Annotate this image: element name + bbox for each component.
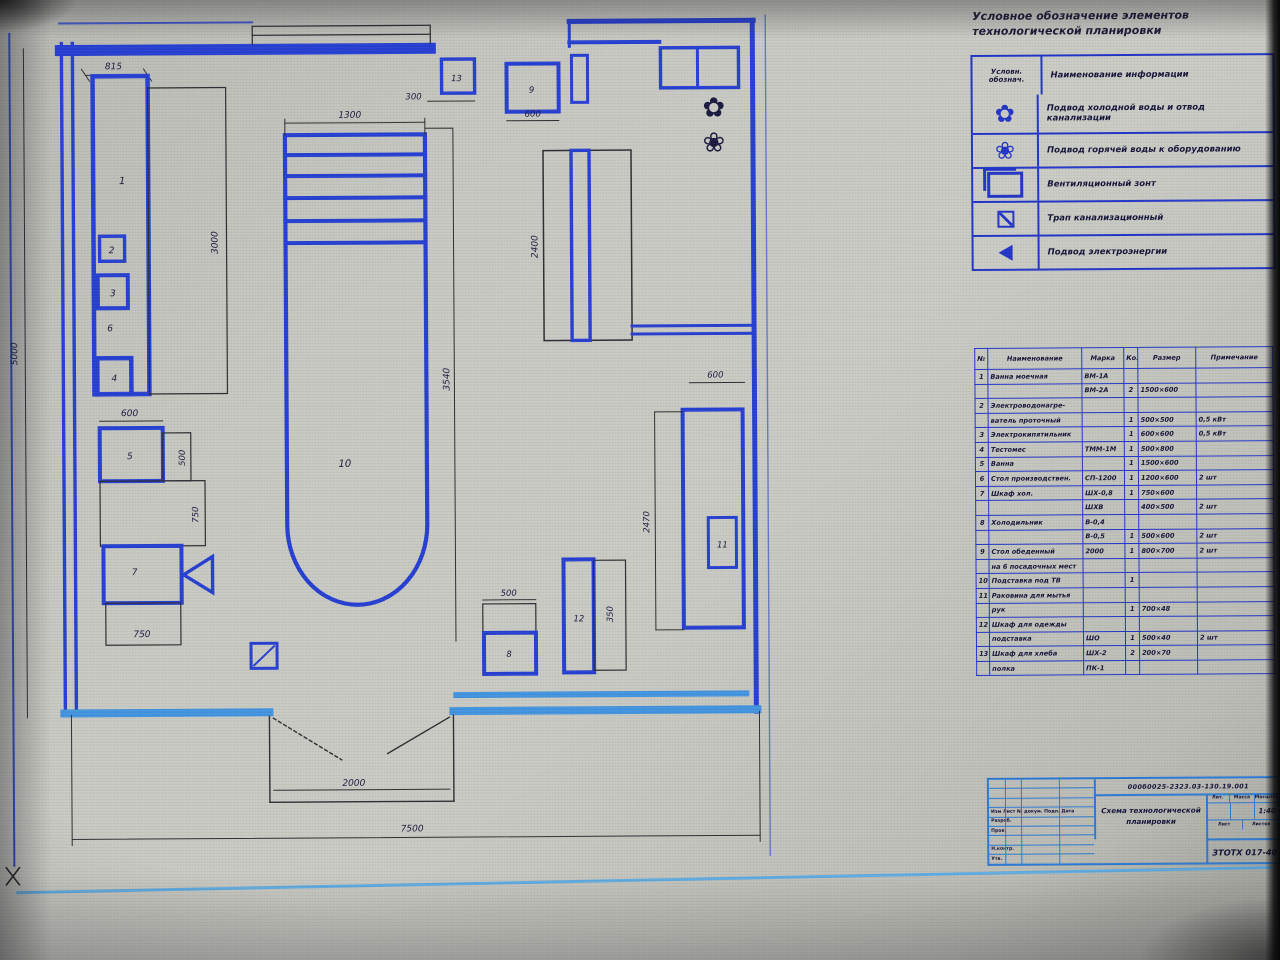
table-cell	[1082, 398, 1124, 413]
wall-cabinet	[660, 47, 738, 87]
table-cell: полка	[990, 661, 1084, 676]
label-equipment-5: 5	[127, 452, 133, 462]
table-cell: 11	[976, 588, 989, 603]
label-equipment-11: 11	[717, 540, 728, 550]
equipment-mid	[571, 150, 590, 340]
table-cell: 200×70	[1140, 645, 1198, 660]
legend-row-desc: Подвод холодной воды и отвод канализации	[1039, 93, 1273, 132]
door-swing-left	[273, 718, 341, 760]
table-cell	[1125, 587, 1139, 602]
lit-value	[1206, 803, 1231, 819]
table-cell: 400×500	[1139, 499, 1197, 514]
power-symbol-plan	[183, 557, 212, 593]
dim-left-rect: 3000	[210, 231, 220, 254]
table-cell: 1	[1124, 471, 1138, 486]
sheet-label: Лист	[1206, 820, 1243, 829]
table-cell	[1082, 412, 1124, 427]
table-cell	[1197, 514, 1274, 529]
table-cell: В-0,4	[1083, 514, 1125, 529]
table-cell: 2	[975, 399, 988, 414]
table-header-row: №НаименованиеМаркаКолРазмерПримечание	[975, 347, 1273, 370]
table-cell: Ванна	[988, 456, 1082, 471]
label-equipment-10: 10	[338, 459, 351, 470]
table-cell: 3	[975, 428, 988, 443]
table-cell: ПК-1	[1084, 660, 1126, 675]
sheet-frame-left	[9, 34, 14, 866]
table-cell: 7	[976, 486, 989, 501]
table-cell: 1	[1124, 427, 1138, 442]
legend-row-desc: Подвод электроэнергии	[1040, 235, 1274, 268]
table-cell: 2 шт	[1197, 543, 1274, 558]
equipment-7	[103, 546, 181, 603]
table-cell	[976, 530, 989, 545]
power-symbol-icon	[999, 245, 1013, 261]
table-cell: 1	[1125, 529, 1139, 544]
drawing-title-line2: планировки	[1126, 816, 1176, 826]
dim-counter-side: 2470	[642, 511, 652, 533]
table-cell: 1	[1124, 412, 1138, 427]
table-cell: 1	[1125, 631, 1139, 646]
dim-c-mid: 750	[191, 507, 201, 523]
drawing-title-line1: Схема технологической	[1101, 806, 1201, 817]
table-cell	[1125, 558, 1139, 573]
table-cell: 2 шт	[1197, 528, 1274, 543]
table-cell: 800×700	[1139, 543, 1197, 558]
label-equipment-7: 7	[132, 568, 138, 578]
drain-symbol-icon	[997, 210, 1014, 227]
table-cell: 700×48	[1139, 602, 1197, 617]
equipment-10	[285, 134, 428, 605]
table-cell: Подставка под ТВ	[989, 573, 1083, 588]
legend-header-desc: Наименование информации	[1042, 55, 1272, 94]
table-cell	[1196, 397, 1273, 412]
table-cell: 12	[976, 617, 989, 632]
drain-symbol-plan	[251, 643, 277, 668]
table-row: полкаПК-1	[977, 660, 1275, 676]
label-equipment-3: 3	[110, 289, 116, 299]
dim-c7-bottom: 750	[133, 630, 151, 640]
table-cell: ТММ-1М	[1082, 442, 1124, 457]
table-cell	[1126, 660, 1140, 675]
table-cell: 1	[1125, 485, 1139, 500]
table-cell: Шкаф для хлеба	[990, 646, 1084, 661]
table-cell	[1124, 398, 1138, 413]
legend-symbol-cell	[973, 169, 1039, 201]
table-cell: 750×600	[1139, 485, 1197, 500]
table-cell	[1197, 616, 1274, 631]
legend-header: Условн. обознач. Наименование информации	[972, 55, 1272, 95]
table-cell	[1139, 616, 1197, 631]
legend-row-desc: Трап канализационный	[1039, 201, 1273, 234]
dim-left-height: 5000	[10, 342, 20, 365]
legend-row: Вентиляционный зонт	[973, 165, 1273, 201]
label-equipment-4: 4	[111, 374, 117, 384]
table-cell: 6	[975, 472, 988, 487]
table-header-cell: Примечание	[1196, 347, 1273, 368]
table-cell: 1	[1124, 456, 1138, 471]
table-cell	[975, 384, 988, 399]
table-cell: Раковина для мытья	[989, 588, 1083, 603]
table-cell	[1083, 587, 1125, 602]
table-cell: Стол обеденный	[989, 544, 1083, 559]
table-cell	[1197, 587, 1274, 602]
table-cell	[1125, 617, 1139, 632]
table-cell: 1	[1125, 573, 1139, 588]
legend-symbol-cell	[973, 135, 1039, 167]
dimension-lines	[23, 44, 760, 845]
table-cell: 500×500	[1138, 412, 1196, 427]
table-cell: 2	[1126, 646, 1140, 661]
table-cell: 1	[1125, 544, 1139, 559]
group-code: ЗТОТХ 017-40	[1206, 838, 1280, 864]
dim-c5-side: 500	[178, 450, 188, 466]
bottom-walls	[64, 693, 757, 713]
table-cell	[1083, 558, 1125, 573]
table-cell: 1500×600	[1138, 456, 1196, 471]
table-cell: 1	[1124, 441, 1138, 456]
table-cell	[988, 383, 1082, 398]
table-cell: 4	[975, 442, 988, 457]
table-cell	[1082, 427, 1124, 442]
table-cell: ВМ-2А	[1082, 383, 1124, 398]
table-cell	[1196, 382, 1273, 397]
table-cell: 500×600	[1139, 529, 1197, 544]
legend-row: Подвод горячей воды к оборудованию	[973, 131, 1273, 167]
scale-label: Масштаб	[1255, 793, 1279, 802]
cold-water-symbol-plan: ✿	[702, 92, 725, 123]
dim-mid-rect: 2400	[531, 235, 541, 258]
table-cell	[1198, 660, 1275, 675]
table-cell	[1140, 660, 1198, 675]
table-cell: на 6 посадочных мест	[989, 559, 1083, 574]
table-cell: ШХВ	[1083, 500, 1125, 515]
table-cell: СП-1200	[1082, 471, 1124, 486]
dim-top-left: 815	[105, 62, 123, 72]
table-cell	[1197, 484, 1274, 499]
dim-sq13: 300	[405, 92, 421, 102]
table-cell	[1125, 500, 1139, 515]
room-walls	[60, 20, 757, 715]
legend-row: Подвод электроэнергии	[974, 233, 1274, 269]
table-cell	[976, 632, 989, 647]
hot-water-symbol-icon	[995, 139, 1015, 163]
dim-sq9: 600	[525, 110, 541, 120]
table-cell: ВМ-1А	[1082, 369, 1124, 384]
title-block: 000б0025-2323.03-130.19.001 Изм Лист № д…	[987, 776, 1280, 866]
table-cell: 5	[975, 457, 988, 472]
table-cell: 1200×600	[1138, 470, 1196, 485]
table-cell	[1138, 368, 1196, 383]
table-cell: В-0,5	[1083, 529, 1125, 544]
table-cell: ШХ-2	[1084, 646, 1126, 661]
table-cell	[1139, 514, 1197, 529]
dim-counter-top: 600	[707, 370, 723, 380]
dim-b8-top: 500	[501, 589, 517, 599]
label-equipment-1: 1	[119, 176, 125, 187]
table-cell: 600×600	[1138, 426, 1196, 441]
floor-plan: 2000 7500 5000 815 1 2 3	[0, 0, 783, 960]
door-swing-right	[387, 717, 449, 753]
hot-water-symbol-plan: ❀	[703, 127, 726, 158]
table-cell	[1083, 573, 1125, 588]
table-cell: 2 шт	[1197, 630, 1274, 645]
table-cell	[975, 413, 988, 428]
legend-row: Подвод холодной воды и отвод канализации	[973, 93, 1273, 133]
table-cell	[1139, 572, 1197, 587]
table-cell	[1124, 368, 1138, 383]
dim-overall: 7500	[401, 824, 424, 834]
screen-photo: 2000 7500 5000 815 1 2 3	[0, 0, 1280, 960]
spec-table: №НаименованиеМаркаКолРазмерПримечание 1В…	[974, 346, 1275, 676]
table-cell	[1138, 397, 1196, 412]
table-cell	[1196, 441, 1273, 456]
scale-value: 1:40	[1255, 803, 1279, 819]
cold-water-symbol-icon	[995, 102, 1015, 126]
equipment-left-column	[93, 76, 150, 394]
legend-row-desc: Вентиляционный зонт	[1039, 167, 1273, 200]
table-cell	[1197, 557, 1274, 572]
table-header-cell: Марка	[1082, 348, 1124, 369]
table-cell: 500×800	[1138, 441, 1196, 456]
table-cell: Ванна моечная	[988, 369, 1082, 384]
table-cell	[977, 661, 990, 676]
table-cell	[1197, 572, 1274, 587]
table-header-cell: Размер	[1138, 347, 1196, 368]
label-equipment-9: 9	[529, 86, 534, 96]
table-cell	[976, 603, 989, 618]
table-cell	[1125, 514, 1139, 529]
legend-symbol-cell	[973, 203, 1039, 235]
label-equipment-8: 8	[506, 650, 512, 660]
table-cell: 1	[1125, 602, 1139, 617]
label-equipment-13: 13	[451, 74, 462, 84]
title-block-right: Лит. Масса Масштаб 1:40 Лист Листов	[1206, 793, 1279, 838]
lit-label: Лит.	[1206, 793, 1230, 802]
table-cell: 1	[975, 369, 988, 384]
partition-lines	[632, 325, 754, 334]
table-header-cell: Кол	[1124, 347, 1138, 368]
legend-title: Условное обозначение элементов технологи…	[972, 8, 1272, 40]
spec-table-body: 1Ванна моечнаяВМ-1АВМ-2А21500×6002Электр…	[975, 368, 1275, 676]
table-cell	[989, 529, 1083, 544]
title-block-left: Изм Лист № докум. Подп. ДатаРазраб.Пров.…	[989, 779, 1095, 864]
legend-symbol-cell	[973, 95, 1039, 133]
table-cell: 9	[976, 544, 989, 559]
table-cell: ватель проточный	[988, 413, 1082, 428]
table-cell: 8	[976, 515, 989, 530]
table-cell	[1083, 602, 1125, 617]
dim-rack-side: 3540	[442, 367, 452, 390]
label-equipment-2: 2	[109, 246, 115, 256]
table-cell	[1139, 587, 1197, 602]
table-header-cell: №	[975, 348, 988, 369]
table-cell	[1196, 455, 1273, 470]
table-cell	[1197, 601, 1274, 616]
table-cell	[1083, 617, 1125, 632]
table-cell: 2 шт	[1196, 470, 1273, 485]
table-cell: ШХ-0,8	[1083, 485, 1125, 500]
upper-wall-lines	[252, 25, 430, 44]
table-cell: 2	[1124, 383, 1138, 398]
dim-b12-side: 350	[606, 606, 616, 622]
rack-shelves	[285, 154, 426, 243]
legend-symbol-cell	[974, 237, 1040, 269]
table-cell: 10	[976, 574, 989, 589]
table-cell	[989, 500, 1083, 515]
table-cell: 2 шт	[1197, 499, 1274, 514]
dim-c5-top: 600	[121, 409, 139, 419]
table-cell: ШО	[1083, 631, 1125, 646]
sheet-frame-right	[765, 15, 770, 855]
table-cell: Холодильник	[989, 515, 1083, 530]
legend-table: Условн. обознач. Наименование информации…	[970, 53, 1275, 271]
table-cell: Электроводонагре-	[988, 398, 1082, 413]
table-cell	[1082, 456, 1124, 471]
table-cell: 0,5 кВт	[1196, 411, 1273, 426]
legend-row-desc: Подвод горячей воды к оборудованию	[1039, 133, 1273, 166]
table-cell: 13	[977, 647, 990, 662]
sheets-label: Листов	[1243, 820, 1279, 829]
table-cell: рук	[989, 602, 1083, 617]
table-cell: Стол производствен.	[988, 471, 1082, 486]
table-cell: Шкаф хол.	[989, 486, 1083, 501]
label-equipment-12: 12	[573, 614, 584, 624]
mass-label: Масса	[1230, 793, 1254, 802]
table-cell: 2000	[1083, 544, 1125, 559]
table-cell: Тестомес	[988, 442, 1082, 457]
legend-rows: Подвод холодной воды и отвод канализации…	[973, 93, 1274, 269]
dim-door: 2000	[342, 779, 365, 789]
vent-hood-symbol-icon	[987, 172, 1023, 198]
legend-row: Трап канализационный	[973, 199, 1273, 235]
table-cell	[1139, 558, 1197, 573]
narrow-cabinet	[571, 55, 587, 102]
table-cell: Электрокипятильник	[988, 427, 1082, 442]
mass-value	[1231, 803, 1256, 819]
spec-table-head: №НаименованиеМаркаКолРазмерПримечание	[975, 347, 1273, 370]
corner-x-mark	[6, 868, 19, 885]
table-cell: 1500×600	[1138, 383, 1196, 398]
legend-title-text: Условное обозначение элементов технологи…	[972, 9, 1189, 38]
drawing-title: Схема технологической планировки	[1094, 794, 1208, 840]
table-cell: 500×40	[1139, 631, 1197, 646]
table-cell	[1198, 645, 1275, 660]
table-cell	[976, 559, 989, 574]
legend-header-symbol: Условн. обознач.	[972, 57, 1042, 95]
label-equipment-6: 6	[107, 324, 113, 334]
table-cell	[1196, 368, 1273, 383]
table-cell: Шкаф для одежды	[989, 617, 1083, 632]
table-cell: подставка	[989, 631, 1083, 646]
drawing-sheet: 2000 7500 5000 815 1 2 3	[0, 0, 1280, 960]
table-cell: 0,5 кВт	[1196, 426, 1273, 441]
table-header-cell: Наименование	[988, 348, 1082, 370]
dim-rack-top: 1300	[338, 111, 361, 121]
table-cell	[976, 501, 989, 516]
